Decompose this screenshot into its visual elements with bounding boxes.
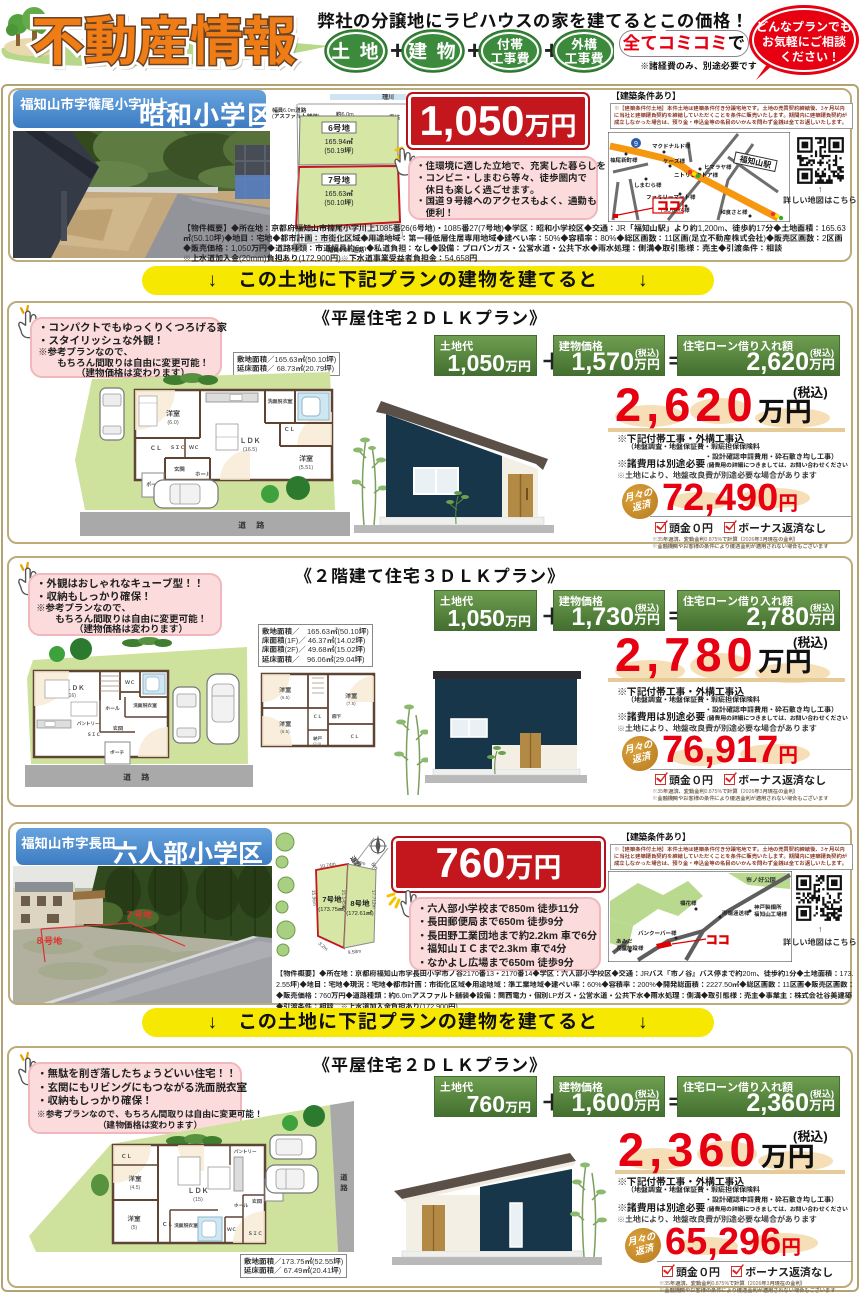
svg-text:ＣＬ: ＣＬ [121, 1153, 132, 1160]
svg-text:あみだ: あみだ [616, 938, 633, 945]
svg-text:道 路: 道 路 [122, 772, 153, 782]
svg-text:ＣＬ: ＣＬ [350, 734, 359, 739]
svg-text:ＣＬ: ＣＬ [313, 714, 322, 719]
svg-text:建 物: 建 物 [408, 42, 457, 63]
svg-text:不動産情報: 不動産情報 [31, 13, 296, 72]
svg-text:(5.51): (5.51) [299, 465, 314, 471]
svg-text:洗面脱衣室: 洗面脱衣室 [174, 1222, 198, 1229]
svg-text:ホール: ホール [234, 1203, 249, 1209]
svg-text:工事費: 工事費 [564, 51, 603, 66]
svg-text:6号地: 6号地 [328, 123, 350, 133]
svg-text:パントリー: パントリー [76, 721, 100, 726]
svg-text:洗面脱衣室: 洗面脱衣室 [133, 702, 157, 709]
svg-text:ＷＣ: ＷＣ [227, 1227, 237, 1233]
svg-text:パントリー: パントリー [233, 1149, 257, 1154]
svg-text:ココ: ココ [706, 933, 730, 947]
svg-text:洋室: 洋室 [129, 1175, 143, 1183]
svg-text:洋室: 洋室 [278, 686, 292, 694]
svg-text:(6.5): (6.5) [280, 729, 290, 734]
svg-text:洋室: 洋室 [278, 720, 292, 728]
svg-text:ください！: ください！ [780, 50, 840, 64]
svg-text:165.94㎡: 165.94㎡ [325, 138, 354, 146]
svg-text:ヒマラヤ様: ヒマラヤ様 [704, 164, 732, 171]
svg-text:ケーズ様: ケーズ様 [663, 158, 686, 165]
svg-text:どんなプランでも: どんなプランでも [756, 20, 852, 34]
svg-text:ホール: ホール [105, 706, 120, 712]
svg-text:ホール: ホール [195, 471, 212, 478]
svg-text:(16.5): (16.5) [243, 447, 258, 453]
svg-text:土 地: 土 地 [331, 42, 380, 63]
svg-text:8号地: 8号地 [350, 899, 370, 908]
svg-text:玄関: 玄関 [113, 726, 123, 732]
svg-text:ＳＩＣ: ＳＩＣ [248, 1231, 263, 1237]
svg-text:ポーチ: ポーチ [110, 750, 125, 756]
svg-text:(50.10坪): (50.10坪) [324, 199, 353, 207]
svg-text:道路: 道路 [339, 1173, 348, 1194]
svg-text:洋室: 洋室 [166, 409, 180, 418]
svg-text:(6.0): (6.0) [167, 420, 178, 426]
svg-text:マクドナルド様: マクドナルド様 [652, 143, 691, 150]
svg-text:17.712m: 17.712m [370, 890, 377, 909]
svg-text:ＳＩＣ: ＳＩＣ [87, 732, 101, 737]
svg-text:バンクーバー様: バンクーバー様 [638, 930, 677, 937]
svg-text:ＬＤＫ: ＬＤＫ [240, 437, 261, 445]
svg-text:７号地: ７号地 [125, 910, 152, 920]
svg-text:7号地: 7号地 [328, 175, 350, 185]
svg-text:(50.19坪): (50.19坪) [324, 147, 353, 155]
svg-text:外構: 外構 [571, 37, 597, 52]
svg-text:洋室: 洋室 [299, 454, 313, 463]
svg-text:河端運送様: 河端運送様 [721, 910, 750, 917]
svg-text:洋室: 洋室 [128, 1215, 142, 1223]
svg-text:道 路: 道 路 [237, 520, 268, 530]
svg-text:しまむら様: しまむら様 [634, 182, 662, 189]
svg-text:7号地: 7号地 [322, 895, 342, 904]
svg-text:和食さと様: 和食さと様 [720, 209, 748, 216]
svg-text:玄関: 玄関 [174, 466, 186, 473]
svg-text:玄関: 玄関 [252, 1199, 262, 1205]
svg-text:工事費: 工事費 [490, 51, 529, 66]
svg-text:ＬＤＫ: ＬＤＫ [188, 1187, 209, 1195]
svg-text:洋室: 洋室 [344, 692, 358, 700]
svg-text:洗面脱衣室: 洗面脱衣室 [267, 398, 292, 405]
svg-text:ＷＣ: ＷＣ [125, 680, 135, 686]
svg-text:ＣＬ: ＣＬ [162, 1221, 173, 1228]
svg-text:(4.5): (4.5) [130, 1185, 141, 1191]
svg-text:(5): (5) [131, 1225, 137, 1231]
svg-text:児童施設様: 児童施設様 [616, 945, 644, 952]
svg-text:市ノ好公園: 市ノ好公園 [746, 876, 776, 884]
svg-text:お気軽にご相談: お気軽にご相談 [762, 35, 846, 49]
svg-text:廊下: 廊下 [331, 714, 341, 719]
svg-text:ＣＬ: ＣＬ [150, 445, 162, 452]
svg-text:(172.61㎡): (172.61㎡) [346, 910, 373, 917]
svg-text:21.145m: 21.145m [340, 890, 347, 909]
svg-text:(2.0): (2.0) [313, 741, 322, 746]
svg-text:(6.5): (6.5) [280, 695, 290, 700]
svg-text:ＣＬ: ＣＬ [284, 426, 295, 433]
svg-text:ＷＣ: ＷＣ [189, 445, 199, 451]
svg-text:ＳＩＣ: ＳＩＣ [170, 445, 185, 451]
svg-text:(15): (15) [193, 1197, 203, 1203]
svg-text:ココ: ココ [657, 199, 681, 213]
svg-text:165.63㎡: 165.63㎡ [325, 190, 354, 198]
svg-text:付帯: 付帯 [497, 37, 523, 52]
svg-text:理川: 理川 [382, 93, 394, 101]
svg-text:神戸製鋼所: 神戸製鋼所 [754, 903, 782, 911]
svg-text:幅員6.0m道路: 幅員6.0m道路 [272, 107, 307, 114]
svg-text:篠尾新町様: 篠尾新町様 [610, 156, 638, 164]
svg-text:9: 9 [634, 141, 638, 148]
svg-text:８号地: ８号地 [35, 936, 62, 946]
svg-text:橋花様: 橋花様 [680, 900, 697, 907]
svg-text:15.96m: 15.96m [310, 890, 317, 906]
svg-text:福知山工場様: 福知山工場様 [754, 911, 788, 918]
svg-text:(7.5): (7.5) [346, 701, 356, 706]
